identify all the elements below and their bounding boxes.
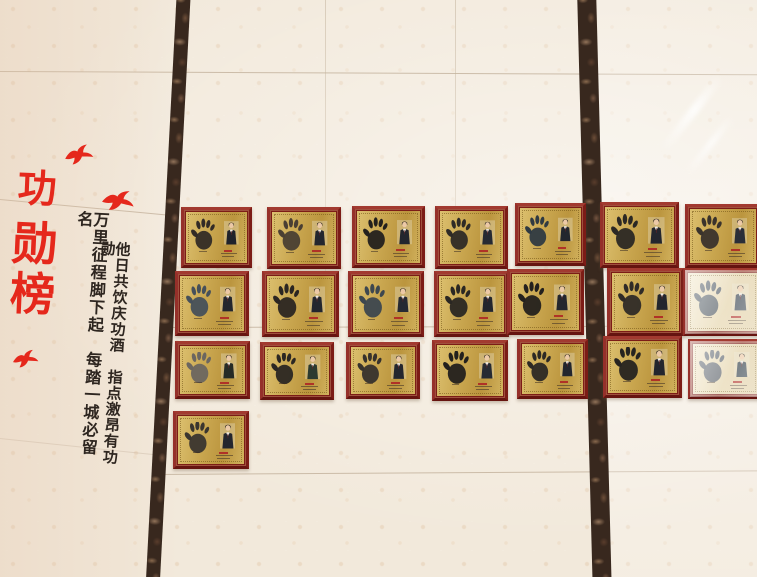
caption-line <box>305 321 322 322</box>
honor-plaque <box>260 342 334 400</box>
signature-mark <box>627 317 635 318</box>
caption-line <box>303 389 316 390</box>
honor-roll-title: 功 勋 榜 <box>0 169 70 325</box>
gold-plate <box>612 273 679 331</box>
handprint-icon <box>525 214 551 250</box>
signature-mark <box>453 319 461 320</box>
bird-icon <box>62 142 95 170</box>
portrait-photo <box>220 282 235 316</box>
signature-mark <box>193 452 201 453</box>
handprint-icon <box>186 352 213 385</box>
portrait-photo <box>309 282 325 317</box>
caption-line <box>389 388 402 389</box>
handprint-icon <box>271 353 298 386</box>
gold-plate <box>437 345 503 396</box>
title-char: 榜 <box>0 271 66 325</box>
gold-plate <box>186 212 247 263</box>
portrait-photo <box>479 350 495 382</box>
honor-plaque <box>352 206 425 268</box>
caption-line <box>558 388 570 389</box>
caption-line <box>555 251 571 252</box>
caption-line <box>392 325 405 326</box>
honor-plaque <box>685 204 757 268</box>
portrait-photo <box>220 421 236 451</box>
gold-plate <box>512 274 579 330</box>
caption-line <box>476 254 492 255</box>
handprint-icon <box>611 214 640 252</box>
signature-mark <box>199 251 206 252</box>
handprint-icon <box>696 215 724 252</box>
honor-plaque <box>175 341 250 399</box>
handprint-icon <box>618 280 646 319</box>
honor-plaque <box>181 207 252 268</box>
bird-icon <box>100 188 136 217</box>
signature-mark <box>620 250 628 251</box>
gold-plate <box>178 416 244 464</box>
caption-line <box>222 256 234 257</box>
portrait-photo <box>391 352 406 381</box>
gold-plate <box>180 346 245 394</box>
caption-line <box>477 325 490 326</box>
handprint-icon <box>278 218 305 253</box>
signature-mark <box>371 251 379 252</box>
glass-glare <box>690 341 757 397</box>
name-caption <box>396 249 405 251</box>
portrait-photo <box>312 217 327 249</box>
name-caption <box>394 317 403 319</box>
honor-plaque <box>517 339 588 399</box>
caption-line <box>216 321 233 322</box>
signature-mark <box>623 381 631 382</box>
portrait-photo <box>648 213 665 248</box>
signature-mark <box>286 252 294 253</box>
gold-plate <box>272 212 336 264</box>
name-caption <box>731 249 740 251</box>
handprint-icon <box>191 218 217 253</box>
name-caption <box>309 317 318 319</box>
caption-line <box>477 257 490 258</box>
signature-mark <box>452 384 460 385</box>
signature-mark <box>705 250 713 251</box>
caption-line <box>308 254 325 255</box>
portrait-photo <box>554 280 570 315</box>
glass-glare <box>685 270 757 334</box>
handprint-icon <box>443 351 471 386</box>
caption-line <box>557 385 573 386</box>
gold-plate <box>522 344 583 394</box>
handprint-icon <box>614 347 643 382</box>
handprint-icon <box>273 283 301 321</box>
signature-mark <box>282 319 290 320</box>
honor-plaque <box>434 271 509 337</box>
name-caption <box>479 317 488 319</box>
name-caption <box>558 247 567 249</box>
caption-line <box>218 324 231 325</box>
gold-plate <box>351 347 415 394</box>
honor-plaque <box>348 271 424 337</box>
caption-line <box>218 388 231 389</box>
caption-line <box>301 386 318 387</box>
caption-line <box>216 455 233 456</box>
caption-line <box>646 256 660 257</box>
gold-plate <box>608 341 677 393</box>
gold-plate <box>439 276 504 332</box>
gold-plate <box>265 347 329 395</box>
signature-mark <box>533 248 540 249</box>
portrait-photo <box>732 214 748 247</box>
handprint-icon <box>184 422 212 455</box>
honor-plaque <box>173 411 249 469</box>
name-caption <box>220 382 229 384</box>
name-caption <box>651 379 661 381</box>
honor-plaque <box>432 340 508 401</box>
name-caption <box>654 316 663 318</box>
honor-plaque <box>603 336 682 398</box>
portrait-photo <box>221 351 237 381</box>
honor-plaque <box>267 207 341 269</box>
name-caption <box>479 250 488 252</box>
caption-line <box>649 386 663 387</box>
signature-mark <box>194 382 202 383</box>
signature-mark <box>527 317 535 318</box>
honor-plaque <box>346 342 420 399</box>
caption-line <box>650 320 667 321</box>
signature-mark <box>368 319 376 320</box>
caption-line <box>393 253 409 254</box>
caption-line <box>221 253 237 254</box>
gold-plate <box>440 211 503 264</box>
honor-wall-photo: 功 勋 榜 万里征程脚下起 每踏一城必留名 他日共饮庆功酒 指点激昂有功勋 <box>0 0 757 577</box>
caption-line <box>217 385 234 386</box>
portrait-photo <box>480 282 496 317</box>
caption-line <box>652 323 665 324</box>
caption-line <box>556 254 568 255</box>
honor-plaque <box>683 268 757 336</box>
name-caption <box>312 250 321 252</box>
caption-line <box>552 323 565 324</box>
honor-plaque <box>607 268 684 336</box>
caption-line <box>550 319 567 320</box>
portrait-photo <box>305 352 320 382</box>
signature-mark <box>194 318 202 319</box>
gold-plate <box>690 209 756 263</box>
caption-line <box>217 458 230 459</box>
handprint-icon <box>186 283 213 320</box>
title-char: 功 <box>4 169 70 223</box>
honor-plaque <box>175 271 249 336</box>
name-caption <box>391 382 400 384</box>
handprint-icon <box>446 217 472 253</box>
honor-plaque <box>262 271 339 337</box>
gold-plate <box>520 208 581 261</box>
honor-plaque <box>688 339 757 399</box>
caption-line <box>644 252 662 253</box>
honor-plaque <box>507 269 584 335</box>
handprint-icon <box>527 350 553 384</box>
name-caption <box>219 452 228 454</box>
handprint-icon <box>359 283 387 321</box>
signature-mark <box>535 382 542 383</box>
portrait-photo <box>651 346 668 378</box>
bird-icon <box>11 347 40 374</box>
portrait-photo <box>654 279 670 315</box>
gold-plate <box>180 276 244 331</box>
honor-plaque <box>435 206 508 269</box>
name-caption <box>305 383 314 385</box>
caption-line <box>387 385 404 386</box>
honor-plaque <box>515 203 586 266</box>
gold-plate <box>267 276 334 332</box>
handprint-icon <box>518 281 546 319</box>
signature-mark <box>454 251 462 252</box>
gold-plate <box>353 276 419 332</box>
portrait-photo <box>224 217 239 249</box>
portrait-photo <box>395 282 411 317</box>
caption-line <box>476 389 489 390</box>
signature-mark <box>365 383 373 384</box>
gold-plate <box>605 207 674 263</box>
title-char: 勋 <box>2 220 68 274</box>
portrait-photo <box>480 216 495 249</box>
caption-line <box>476 321 493 322</box>
caption-line <box>391 321 408 322</box>
honor-plaque <box>600 202 679 268</box>
signature-mark <box>279 383 287 384</box>
caption-line <box>307 325 320 326</box>
caption-line <box>394 256 407 257</box>
name-caption <box>648 248 658 250</box>
caption-line <box>647 383 665 384</box>
name-caption <box>554 315 563 317</box>
caption-line <box>729 256 742 257</box>
name-caption <box>224 250 233 252</box>
portrait-photo <box>558 213 573 246</box>
name-caption <box>220 317 229 319</box>
portrait-photo <box>560 349 575 380</box>
name-caption <box>560 381 569 383</box>
handprint-icon <box>357 353 384 385</box>
handprint-icon <box>363 217 389 252</box>
portrait-photo <box>397 216 412 248</box>
name-caption <box>478 383 487 385</box>
caption-line <box>728 253 745 254</box>
gold-plate <box>357 211 420 263</box>
caption-line <box>310 257 323 258</box>
handprint-icon <box>445 283 472 321</box>
caption-line <box>475 386 492 387</box>
